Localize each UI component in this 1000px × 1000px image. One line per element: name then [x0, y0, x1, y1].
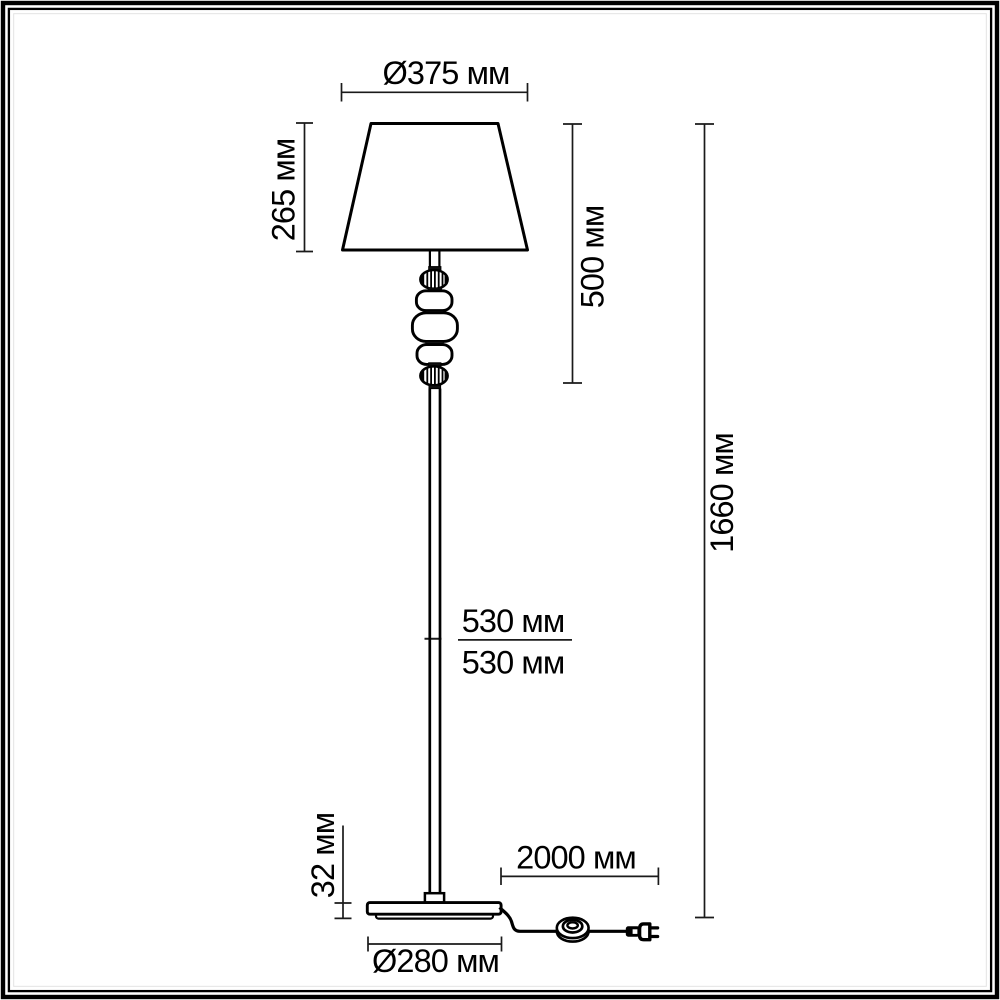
svg-text:Ø375 мм: Ø375 мм: [383, 55, 510, 91]
svg-text:1660 мм: 1660 мм: [704, 433, 740, 553]
svg-text:Ø280 мм: Ø280 мм: [372, 943, 499, 979]
svg-text:500 мм: 500 мм: [575, 206, 611, 309]
svg-text:265 мм: 265 мм: [266, 139, 302, 242]
svg-text:530 мм: 530 мм: [462, 644, 565, 680]
svg-text:2000 мм: 2000 мм: [516, 840, 636, 876]
svg-text:530 мм: 530 мм: [462, 603, 565, 639]
svg-text:32 мм: 32 мм: [305, 813, 341, 898]
